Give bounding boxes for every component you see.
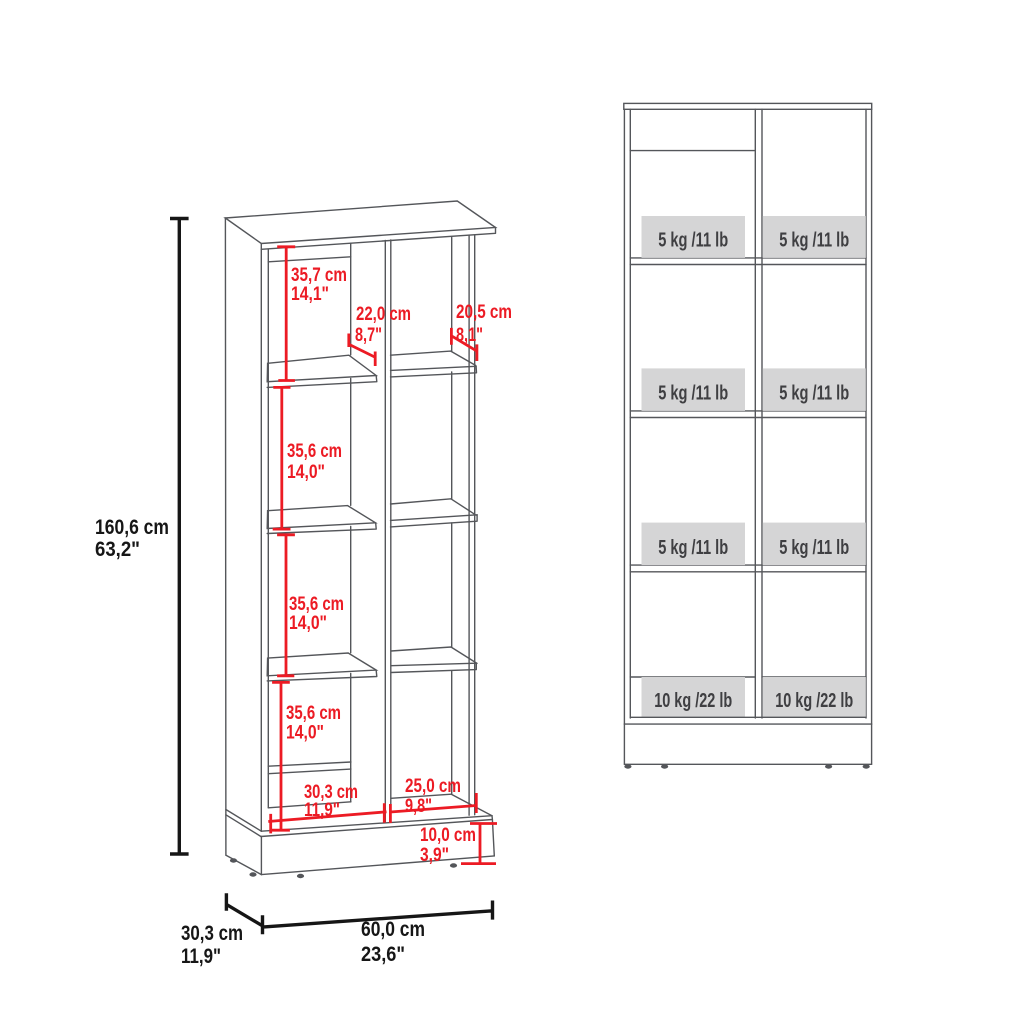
svg-text:23,6": 23,6"	[361, 943, 405, 966]
svg-text:20,5 cm: 20,5 cm	[456, 302, 512, 323]
svg-text:35,7 cm: 35,7 cm	[291, 265, 347, 286]
svg-text:14,0": 14,0"	[289, 613, 327, 634]
svg-text:14,0": 14,0"	[286, 723, 324, 744]
svg-text:8,7": 8,7"	[355, 325, 382, 346]
svg-text:5 kg /11 lb: 5 kg /11 lb	[779, 230, 849, 252]
svg-text:35,6 cm: 35,6 cm	[286, 703, 341, 724]
svg-text:14,0": 14,0"	[287, 462, 325, 483]
svg-text:14,1": 14,1"	[291, 284, 329, 305]
svg-text:22,0 cm: 22,0 cm	[356, 304, 411, 325]
svg-text:3,9": 3,9"	[420, 845, 449, 866]
svg-text:63,2": 63,2"	[95, 538, 140, 561]
svg-text:5 kg /11 lb: 5 kg /11 lb	[658, 230, 728, 252]
svg-text:25,0 cm: 25,0 cm	[405, 776, 461, 797]
svg-text:60,0 cm: 60,0 cm	[361, 918, 425, 941]
svg-text:35,6 cm: 35,6 cm	[287, 441, 342, 462]
svg-text:35,6 cm: 35,6 cm	[289, 594, 344, 615]
svg-text:11,9": 11,9"	[304, 800, 340, 821]
svg-text:5 kg /11 lb: 5 kg /11 lb	[658, 383, 728, 405]
svg-text:30,3 cm: 30,3 cm	[181, 922, 243, 945]
svg-text:11,9": 11,9"	[181, 945, 221, 968]
svg-text:9,8": 9,8"	[405, 796, 432, 817]
svg-text:5 kg /11 lb: 5 kg /11 lb	[779, 537, 849, 559]
svg-text:160,6 cm: 160,6 cm	[95, 516, 169, 539]
svg-text:10 kg /22 lb: 10 kg /22 lb	[775, 690, 853, 712]
svg-text:10,0 cm: 10,0 cm	[420, 825, 476, 846]
svg-text:5 kg /11 lb: 5 kg /11 lb	[779, 383, 849, 405]
svg-text:8,1": 8,1"	[456, 325, 483, 346]
svg-text:5 kg /11 lb: 5 kg /11 lb	[658, 537, 728, 559]
svg-text:10 kg /22 lb: 10 kg /22 lb	[654, 690, 732, 712]
